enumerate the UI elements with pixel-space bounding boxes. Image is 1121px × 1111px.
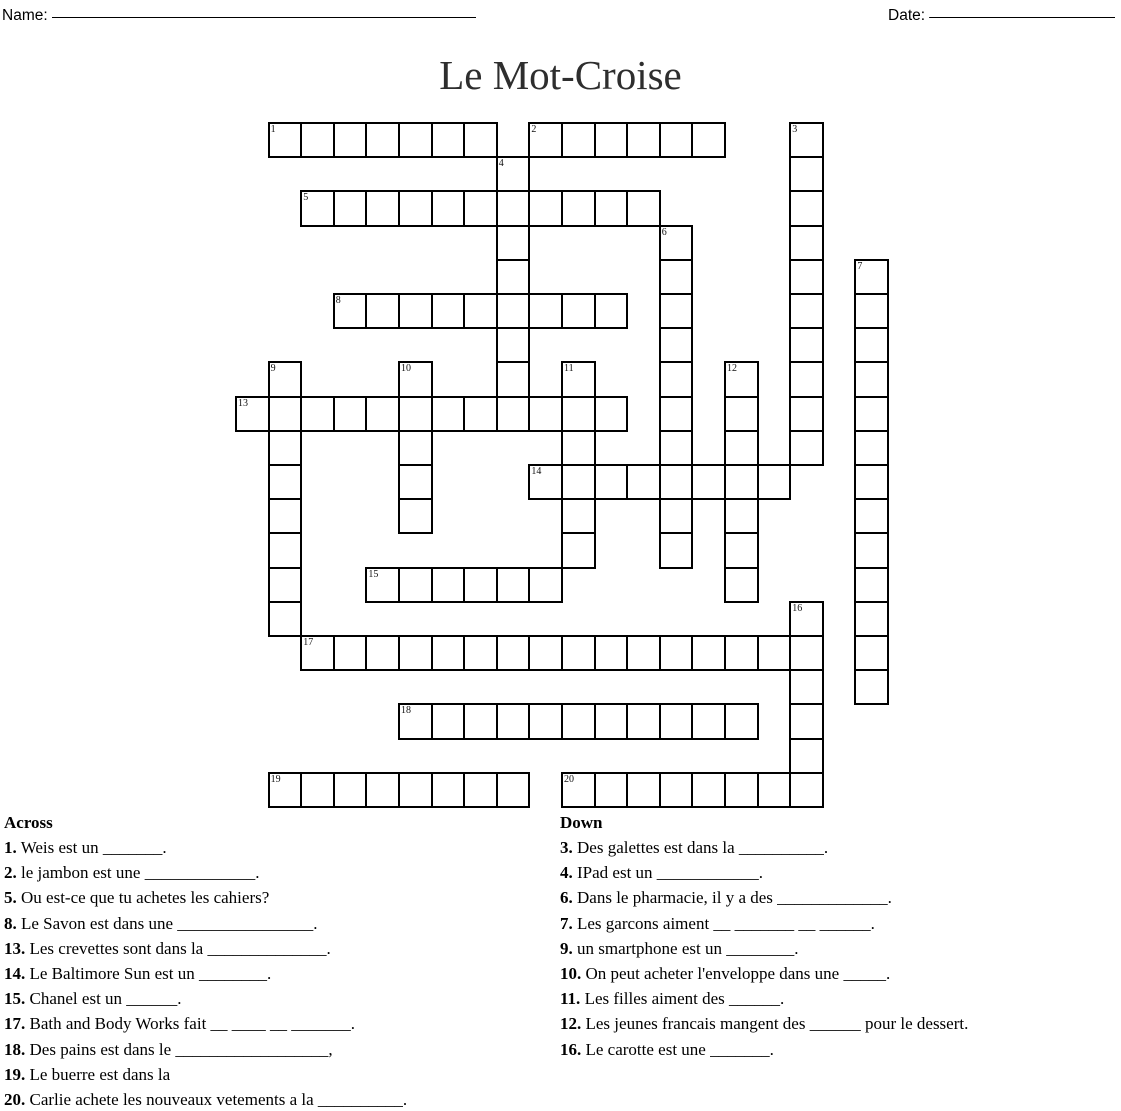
grid-cell-r10-c1 — [268, 464, 303, 500]
grid-cell-r5-c17 — [789, 293, 824, 329]
across-clue-5: 5. Ou est-ce que tu achetes les cahiers? — [4, 885, 552, 910]
down-clue-7: 7. Les garcons aiment __ _______ __ ____… — [560, 911, 1118, 936]
grid-cell-r12-c13 — [659, 532, 694, 568]
grid-cell-r13-c19 — [854, 567, 889, 603]
grid-cell-r0-c13 — [659, 122, 694, 158]
across-clue-17: 17. Bath and Body Works fait __ ____ __ … — [4, 1011, 552, 1036]
grid-cell-r9-c19 — [854, 430, 889, 466]
clue-number-16: 16 — [792, 604, 802, 614]
across-clue-20: 20. Carlie achete les nouveaux vetements… — [4, 1087, 552, 1111]
grid-cell-r19-c16 — [757, 772, 792, 808]
down-clue-9: 9. un smartphone est un ________. — [560, 936, 1118, 961]
down-clue-number-7: 7. — [560, 914, 573, 933]
across-clue-number-15: 15. — [4, 989, 25, 1008]
grid-cell-r8-c13 — [659, 396, 694, 432]
grid-cell-r17-c8 — [496, 703, 531, 739]
grid-cell-r0-c14 — [691, 122, 726, 158]
grid-cell-r15-c10 — [561, 635, 596, 671]
down-clue-number-3: 3. — [560, 838, 573, 857]
grid-cell-r2-c6 — [431, 190, 466, 226]
grid-cell-r0-c4 — [365, 122, 400, 158]
across-clue-number-1: 1. — [4, 838, 17, 857]
grid-cell-r2-c12 — [626, 190, 661, 226]
grid-cell-r19-c15 — [724, 772, 759, 808]
grid-cell-r10-c15 — [724, 464, 759, 500]
grid-cell-r10-c12 — [626, 464, 661, 500]
grid-cell-r19-c13 — [659, 772, 694, 808]
grid-cell-r0-c2 — [300, 122, 335, 158]
grid-cell-r11-c13 — [659, 498, 694, 534]
grid-cell-r8-c1 — [268, 396, 303, 432]
grid-cell-r9-c10 — [561, 430, 596, 466]
clue-number-5: 5 — [303, 193, 308, 203]
grid-cell-r5-c9 — [528, 293, 563, 329]
down-clue-number-6: 6. — [560, 888, 573, 907]
grid-cell-r13-c6 — [431, 567, 466, 603]
across-clue-number-13: 13. — [4, 939, 25, 958]
grid-cell-r13-c8 — [496, 567, 531, 603]
grid-cell-r10-c13 — [659, 464, 694, 500]
grid-cell-r4-c8 — [496, 259, 531, 295]
clue-number-12: 12 — [727, 364, 737, 374]
across-clue-18: 18. Des pains est dans le ______________… — [4, 1037, 552, 1062]
grid-cell-r1-c17 — [789, 156, 824, 192]
grid-cell-r15-c19 — [854, 635, 889, 671]
grid-cell-r0-c10 — [561, 122, 596, 158]
grid-cell-r9-c17 — [789, 430, 824, 466]
grid-cell-r10-c10 — [561, 464, 596, 500]
grid-cell-r15-c7 — [463, 635, 498, 671]
grid-cell-r15-c17 — [789, 635, 824, 671]
grid-cell-r9-c5 — [398, 430, 433, 466]
clue-number-18: 18 — [401, 706, 411, 716]
grid-cell-r19-c11 — [594, 772, 629, 808]
across-clues-section: Across 1. Weis est un _______.2. le jamb… — [4, 810, 552, 1111]
grid-cell-r13-c15 — [724, 567, 759, 603]
grid-cell-r8-c6 — [431, 396, 466, 432]
across-clue-number-14: 14. — [4, 964, 25, 983]
across-clue-19: 19. Le buerre est dans la — [4, 1062, 552, 1087]
across-clue-number-8: 8. — [4, 914, 17, 933]
grid-cell-r12-c1 — [268, 532, 303, 568]
clue-number-7: 7 — [857, 262, 862, 272]
across-clue-13: 13. Les crevettes sont dans la _________… — [4, 936, 552, 961]
down-clue-number-9: 9. — [560, 939, 573, 958]
grid-cell-r8-c9 — [528, 396, 563, 432]
grid-cell-r0-c11 — [594, 122, 629, 158]
grid-cell-r5-c19 — [854, 293, 889, 329]
grid-cell-r17-c12 — [626, 703, 661, 739]
across-header: Across — [4, 810, 552, 835]
across-clue-2: 2. le jambon est une _____________. — [4, 860, 552, 885]
grid-cell-r8-c8 — [496, 396, 531, 432]
grid-cell-r17-c6 — [431, 703, 466, 739]
clue-number-4: 4 — [499, 159, 504, 169]
worksheet-page: Name: __________________________________… — [0, 0, 1121, 1111]
grid-cell-r11-c19 — [854, 498, 889, 534]
grid-cell-r2-c17 — [789, 190, 824, 226]
across-clue-8: 8. Le Savon est dans une _______________… — [4, 911, 552, 936]
grid-cell-r19-c6 — [431, 772, 466, 808]
down-clue-10: 10. On peut acheter l'enveloppe dans une… — [560, 961, 1118, 986]
grid-cell-r5-c5 — [398, 293, 433, 329]
grid-cell-r15-c8 — [496, 635, 531, 671]
grid-cell-r2-c4 — [365, 190, 400, 226]
grid-cell-r0-c5 — [398, 122, 433, 158]
grid-cell-r19-c8 — [496, 772, 531, 808]
down-clues-section: Down 3. Des galettes est dans la _______… — [560, 810, 1118, 1062]
across-clue-1: 1. Weis est un _______. — [4, 835, 552, 860]
grid-cell-r8-c3 — [333, 396, 368, 432]
grid-cell-r17-c11 — [594, 703, 629, 739]
grid-cell-r5-c13 — [659, 293, 694, 329]
clue-number-19: 19 — [271, 775, 281, 785]
grid-cell-r5-c8 — [496, 293, 531, 329]
grid-cell-r8-c4 — [365, 396, 400, 432]
grid-cell-r17-c7 — [463, 703, 498, 739]
grid-cell-r13-c1 — [268, 567, 303, 603]
grid-cell-r7-c17 — [789, 361, 824, 397]
grid-cell-r19-c14 — [691, 772, 726, 808]
grid-cell-r15-c15 — [724, 635, 759, 671]
grid-cell-r6-c13 — [659, 327, 694, 363]
grid-cell-r16-c19 — [854, 669, 889, 705]
across-clue-list: 1. Weis est un _______.2. le jambon est … — [4, 835, 552, 1111]
grid-cell-r19-c2 — [300, 772, 335, 808]
down-clue-11: 11. Les filles aiment des ______. — [560, 986, 1118, 1011]
grid-cell-r7-c8 — [496, 361, 531, 397]
clue-number-14: 14 — [531, 467, 541, 477]
grid-cell-r15-c16 — [757, 635, 792, 671]
grid-cell-r2-c9 — [528, 190, 563, 226]
clue-number-10: 10 — [401, 364, 411, 374]
grid-cell-r15-c12 — [626, 635, 661, 671]
grid-cell-r16-c17 — [789, 669, 824, 705]
grid-cell-r11-c10 — [561, 498, 596, 534]
grid-cell-r19-c17 — [789, 772, 824, 808]
grid-cell-r15-c5 — [398, 635, 433, 671]
grid-cell-r2-c8 — [496, 190, 531, 226]
grid-cell-r19-c4 — [365, 772, 400, 808]
clue-number-13: 13 — [238, 399, 248, 409]
grid-cell-r10-c14 — [691, 464, 726, 500]
grid-cell-r12-c10 — [561, 532, 596, 568]
grid-cell-r0-c3 — [333, 122, 368, 158]
across-clue-15: 15. Chanel est un ______. — [4, 986, 552, 1011]
across-clue-number-18: 18. — [4, 1040, 25, 1059]
down-clue-number-4: 4. — [560, 863, 573, 882]
grid-cell-r17-c17 — [789, 703, 824, 739]
grid-cell-r4-c13 — [659, 259, 694, 295]
grid-cell-r10-c19 — [854, 464, 889, 500]
down-clue-number-10: 10. — [560, 964, 581, 983]
grid-cell-r8-c19 — [854, 396, 889, 432]
grid-cell-r15-c11 — [594, 635, 629, 671]
clue-number-2: 2 — [531, 125, 536, 135]
grid-cell-r2-c10 — [561, 190, 596, 226]
grid-cell-r17-c10 — [561, 703, 596, 739]
grid-cell-r13-c5 — [398, 567, 433, 603]
grid-cell-r15-c13 — [659, 635, 694, 671]
grid-cell-r17-c14 — [691, 703, 726, 739]
across-clue-number-20: 20. — [4, 1090, 25, 1109]
across-clue-number-17: 17. — [4, 1014, 25, 1033]
grid-cell-r0-c12 — [626, 122, 661, 158]
grid-cell-r8-c5 — [398, 396, 433, 432]
grid-cell-r13-c7 — [463, 567, 498, 603]
grid-cell-r17-c15 — [724, 703, 759, 739]
grid-cell-r18-c17 — [789, 738, 824, 774]
grid-cell-r8-c7 — [463, 396, 498, 432]
clue-number-11: 11 — [564, 364, 574, 374]
grid-cell-r3-c17 — [789, 225, 824, 261]
across-clue-number-5: 5. — [4, 888, 17, 907]
grid-cell-r15-c14 — [691, 635, 726, 671]
down-clue-number-12: 12. — [560, 1014, 581, 1033]
down-clue-3: 3. Des galettes est dans la __________. — [560, 835, 1118, 860]
clue-number-17: 17 — [303, 638, 313, 648]
grid-cell-r15-c4 — [365, 635, 400, 671]
grid-cell-r10-c5 — [398, 464, 433, 500]
down-clue-12: 12. Les jeunes francais mangent des ____… — [560, 1011, 1118, 1036]
grid-cell-r2-c7 — [463, 190, 498, 226]
grid-cell-r19-c3 — [333, 772, 368, 808]
grid-cell-r11-c15 — [724, 498, 759, 534]
down-clue-4: 4. IPad est un ____________. — [560, 860, 1118, 885]
down-clue-16: 16. Le carotte est une _______. — [560, 1037, 1118, 1062]
clue-number-8: 8 — [336, 296, 341, 306]
grid-cell-r17-c13 — [659, 703, 694, 739]
grid-cell-r9-c1 — [268, 430, 303, 466]
grid-cell-r11-c5 — [398, 498, 433, 534]
grid-cell-r2-c3 — [333, 190, 368, 226]
clue-number-20: 20 — [564, 775, 574, 785]
grid-cell-r10-c16 — [757, 464, 792, 500]
across-clue-14: 14. Le Baltimore Sun est un ________. — [4, 961, 552, 986]
grid-cell-r8-c17 — [789, 396, 824, 432]
grid-cell-r8-c15 — [724, 396, 759, 432]
grid-cell-r14-c1 — [268, 601, 303, 637]
grid-cell-r19-c12 — [626, 772, 661, 808]
clue-number-6: 6 — [662, 228, 667, 238]
grid-cell-r2-c11 — [594, 190, 629, 226]
grid-cell-r14-c19 — [854, 601, 889, 637]
down-clue-number-11: 11. — [560, 989, 580, 1008]
grid-cell-r2-c5 — [398, 190, 433, 226]
crossword-grid: 1234567891011121314151617181920 — [0, 0, 1121, 820]
grid-cell-r6-c8 — [496, 327, 531, 363]
grid-cell-r5-c11 — [594, 293, 629, 329]
grid-cell-r5-c7 — [463, 293, 498, 329]
grid-cell-r8-c10 — [561, 396, 596, 432]
grid-cell-r0-c6 — [431, 122, 466, 158]
grid-cell-r9-c15 — [724, 430, 759, 466]
clue-number-9: 9 — [271, 364, 276, 374]
grid-cell-r12-c19 — [854, 532, 889, 568]
grid-cell-r8-c2 — [300, 396, 335, 432]
grid-cell-r15-c3 — [333, 635, 368, 671]
grid-cell-r7-c13 — [659, 361, 694, 397]
grid-cell-r8-c11 — [594, 396, 629, 432]
grid-cell-r9-c13 — [659, 430, 694, 466]
grid-cell-r5-c4 — [365, 293, 400, 329]
clue-number-1: 1 — [271, 125, 276, 135]
grid-cell-r19-c7 — [463, 772, 498, 808]
grid-cell-r3-c8 — [496, 225, 531, 261]
grid-cell-r11-c1 — [268, 498, 303, 534]
down-clue-6: 6. Dans le pharmacie, il y a des _______… — [560, 885, 1118, 910]
grid-cell-r10-c11 — [594, 464, 629, 500]
grid-cell-r19-c5 — [398, 772, 433, 808]
grid-cell-r15-c9 — [528, 635, 563, 671]
grid-cell-r5-c10 — [561, 293, 596, 329]
across-clue-number-19: 19. — [4, 1065, 25, 1084]
clue-number-15: 15 — [368, 570, 378, 580]
across-clue-number-2: 2. — [4, 863, 17, 882]
down-header: Down — [560, 810, 1118, 835]
grid-cell-r13-c9 — [528, 567, 563, 603]
down-clue-number-16: 16. — [560, 1040, 581, 1059]
grid-cell-r4-c17 — [789, 259, 824, 295]
grid-cell-r6-c19 — [854, 327, 889, 363]
clue-number-3: 3 — [792, 125, 797, 135]
down-clue-list: 3. Des galettes est dans la __________.4… — [560, 835, 1118, 1062]
grid-cell-r7-c19 — [854, 361, 889, 397]
grid-cell-r5-c6 — [431, 293, 466, 329]
grid-cell-r6-c17 — [789, 327, 824, 363]
grid-cell-r0-c7 — [463, 122, 498, 158]
grid-cell-r12-c15 — [724, 532, 759, 568]
grid-cell-r15-c6 — [431, 635, 466, 671]
grid-cell-r17-c9 — [528, 703, 563, 739]
